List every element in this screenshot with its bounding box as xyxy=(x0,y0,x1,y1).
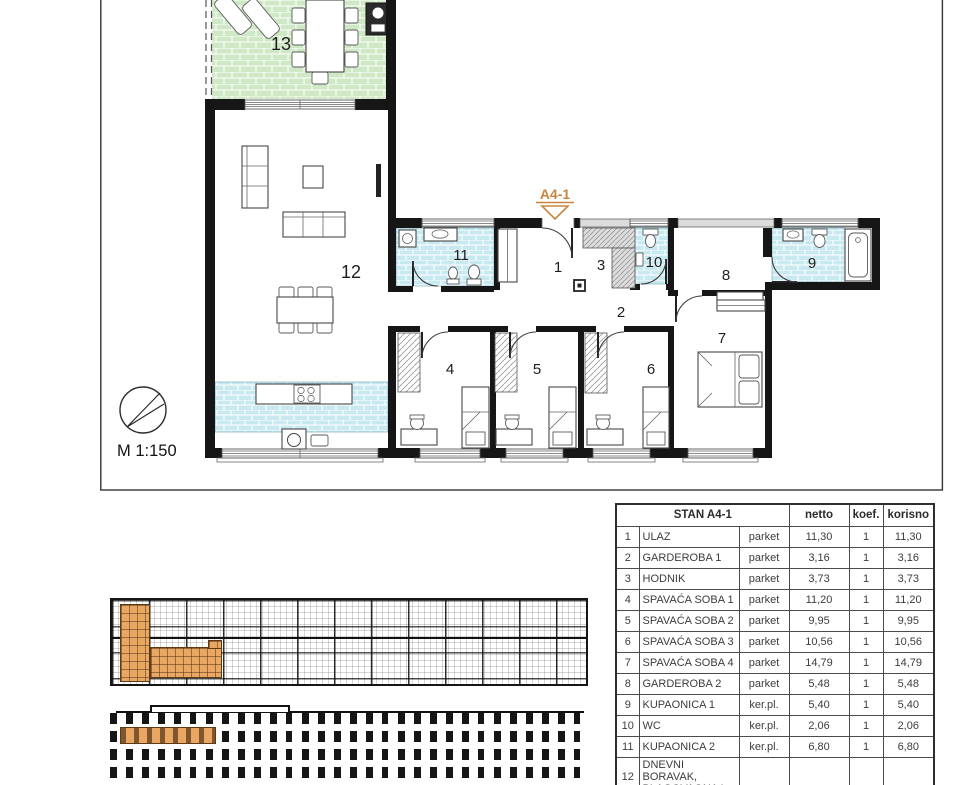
cell-room-number: 4 xyxy=(616,589,639,610)
highlighted-floor xyxy=(120,727,216,744)
cell-netto: 11,20 xyxy=(789,589,849,610)
room-label-7: 7 xyxy=(718,330,726,347)
cell-korisno: 10,56 xyxy=(883,631,934,652)
cell-room-name: SPAVAĆA SOBA 4 xyxy=(639,652,739,673)
scale-label: M 1:150 xyxy=(117,442,177,460)
cell-room-name: SPAVAĆA SOBA 1 xyxy=(639,589,739,610)
cell-netto: 10,56 xyxy=(789,631,849,652)
cell-koef: 1 xyxy=(849,526,883,547)
cell-korisno: 3,73 xyxy=(883,568,934,589)
cell-korisno: 9,95 xyxy=(883,610,934,631)
cell-room-name: GARDEROBA 1 xyxy=(639,547,739,568)
cell-floor-type: ker.pl. xyxy=(739,715,789,736)
key-plan-corridor xyxy=(112,637,586,639)
roof-step xyxy=(150,705,290,712)
table-row: 10 WC ker.pl. 2,06 1 2,06 xyxy=(616,715,934,736)
cell-koef: 1 xyxy=(849,694,883,715)
cell-koef: 1 xyxy=(849,568,883,589)
col-korisno: korisno xyxy=(883,504,934,526)
cell-korisno: 11,30 xyxy=(883,526,934,547)
cell-room-number: 10 xyxy=(616,715,639,736)
cell-korisno: 2,06 xyxy=(883,715,934,736)
cell-netto: 6,80 xyxy=(789,736,849,757)
highlighted-unit xyxy=(208,640,222,649)
cell-netto: 11,30 xyxy=(789,526,849,547)
cell-floor-type: parket xyxy=(739,652,789,673)
hall-closet xyxy=(583,228,635,248)
room-label-6: 6 xyxy=(647,361,655,378)
cell-room-number: 7 xyxy=(616,652,639,673)
cell-floor-type: parket xyxy=(739,673,789,694)
cell-koef xyxy=(849,757,883,785)
cell-room-number: 6 xyxy=(616,631,639,652)
cell-netto: 5,40 xyxy=(789,694,849,715)
cell-korisno: 5,40 xyxy=(883,694,934,715)
cell-korisno: 11,20 xyxy=(883,589,934,610)
room-label-11: 11 xyxy=(453,247,469,264)
cell-netto: 3,73 xyxy=(789,568,849,589)
cell-room-name: GARDEROBA 2 xyxy=(639,673,739,694)
cell-netto: 2,06 xyxy=(789,715,849,736)
kitchen-island xyxy=(256,384,352,404)
cell-floor-type: parket xyxy=(739,631,789,652)
building-elevation xyxy=(110,702,588,785)
cell-floor-type: parket xyxy=(739,547,789,568)
cell-room-number: 2 xyxy=(616,547,639,568)
area-table-header: STAN A4-1 netto koef. korisno xyxy=(616,504,934,526)
page: 13 12 11 1 3 2 10 8 9 7 4 5 6 A4-1 M 1:1… xyxy=(0,0,961,785)
table-row: 12 DNEVNI BORAVAK, BLAGOVAONA I xyxy=(616,757,934,785)
room-label-1: 1 xyxy=(554,259,562,276)
hatched-wall xyxy=(580,219,630,227)
cell-floor-type: parket xyxy=(739,526,789,547)
room-label-12: 12 xyxy=(341,262,361,282)
cell-netto: 14,79 xyxy=(789,652,849,673)
room-label-9: 9 xyxy=(808,255,816,272)
cell-koef: 1 xyxy=(849,652,883,673)
cell-koef: 1 xyxy=(849,673,883,694)
cell-korisno: 6,80 xyxy=(883,736,934,757)
room-label-13: 13 xyxy=(271,34,291,54)
table-row: 1 ULAZ parket 11,30 1 11,30 xyxy=(616,526,934,547)
col-netto: netto xyxy=(789,504,849,526)
cell-netto xyxy=(789,757,849,785)
room-label-4: 4 xyxy=(446,361,454,378)
terrace xyxy=(206,0,390,99)
cell-netto: 9,95 xyxy=(789,610,849,631)
table-row: 5 SPAVAĆA SOBA 2 parket 9,95 1 9,95 xyxy=(616,610,934,631)
cell-room-name: SPAVAĆA SOBA 3 xyxy=(639,631,739,652)
room-label-10: 10 xyxy=(646,254,663,271)
cell-room-number: 11 xyxy=(616,736,639,757)
cell-floor-type: parket xyxy=(739,589,789,610)
cell-room-name: SPAVAĆA SOBA 2 xyxy=(639,610,739,631)
highlighted-unit xyxy=(120,604,150,682)
cell-room-name: ULAZ xyxy=(639,526,739,547)
cell-floor-type: parket xyxy=(739,568,789,589)
floor-plan-drawing: 13 12 11 1 3 2 10 8 9 7 4 5 6 A4-1 M 1:1… xyxy=(0,0,961,492)
room-label-5: 5 xyxy=(533,361,541,378)
cell-room-name: HODNIK xyxy=(639,568,739,589)
cell-room-number: 5 xyxy=(616,610,639,631)
hatched-wall xyxy=(678,219,774,227)
table-row: 7 SPAVAĆA SOBA 4 parket 14,79 1 14,79 xyxy=(616,652,934,673)
room-label-3: 3 xyxy=(597,257,605,274)
cell-koef: 1 xyxy=(849,715,883,736)
dining-table xyxy=(277,287,333,333)
cell-koef: 1 xyxy=(849,547,883,568)
room-label-8: 8 xyxy=(722,267,730,284)
table-row: 3 HODNIK parket 3,73 1 3,73 xyxy=(616,568,934,589)
room-label-2: 2 xyxy=(617,304,625,321)
table-row: 4 SPAVAĆA SOBA 1 parket 11,20 1 11,20 xyxy=(616,589,934,610)
table-row: 11 KUPAONICA 2 ker.pl. 6,80 1 6,80 xyxy=(616,736,934,757)
hall-closet xyxy=(612,248,635,288)
cell-room-name: WC xyxy=(639,715,739,736)
table-row: 9 KUPAONICA 1 ker.pl. 5,40 1 5,40 xyxy=(616,694,934,715)
col-koef: koef. xyxy=(849,504,883,526)
cell-room-number: 8 xyxy=(616,673,639,694)
area-table-body: 1 ULAZ parket 11,30 1 11,30 2 GARDEROBA … xyxy=(616,526,934,785)
cell-room-name: KUPAONICA 1 xyxy=(639,694,739,715)
cell-korisno: 5,48 xyxy=(883,673,934,694)
cell-netto: 3,16 xyxy=(789,547,849,568)
table-row: 6 SPAVAĆA SOBA 3 parket 10,56 1 10,56 xyxy=(616,631,934,652)
section-marker-label: A4-1 xyxy=(540,186,571,202)
cell-room-name: KUPAONICA 2 xyxy=(639,736,739,757)
cell-korisno: 3,16 xyxy=(883,547,934,568)
table-row: 2 GARDEROBA 1 parket 3,16 1 3,16 xyxy=(616,547,934,568)
table-title: STAN A4-1 xyxy=(616,504,789,526)
cell-floor-type: parket xyxy=(739,610,789,631)
highlighted-unit xyxy=(150,647,222,678)
cell-korisno: 14,79 xyxy=(883,652,934,673)
area-table: STAN A4-1 netto koef. korisno 1 ULAZ par… xyxy=(615,503,935,785)
table-row: 8 GARDEROBA 2 parket 5,48 1 5,48 xyxy=(616,673,934,694)
cell-floor-type: ker.pl. xyxy=(739,694,789,715)
key-plan xyxy=(110,598,588,686)
intercom-icon xyxy=(574,280,585,291)
cell-room-name: DNEVNI BORAVAK, BLAGOVAONA I xyxy=(639,757,739,785)
cell-koef: 1 xyxy=(849,631,883,652)
cell-floor-type xyxy=(739,757,789,785)
cell-koef: 1 xyxy=(849,736,883,757)
cell-koef: 1 xyxy=(849,589,883,610)
cell-room-number: 9 xyxy=(616,694,639,715)
cell-room-number: 1 xyxy=(616,526,639,547)
cell-room-number: 12 xyxy=(616,757,639,785)
cell-korisno xyxy=(883,757,934,785)
cell-room-number: 3 xyxy=(616,568,639,589)
cell-floor-type: ker.pl. xyxy=(739,736,789,757)
cell-netto: 5,48 xyxy=(789,673,849,694)
tv-icon xyxy=(376,164,381,197)
cell-koef: 1 xyxy=(849,610,883,631)
